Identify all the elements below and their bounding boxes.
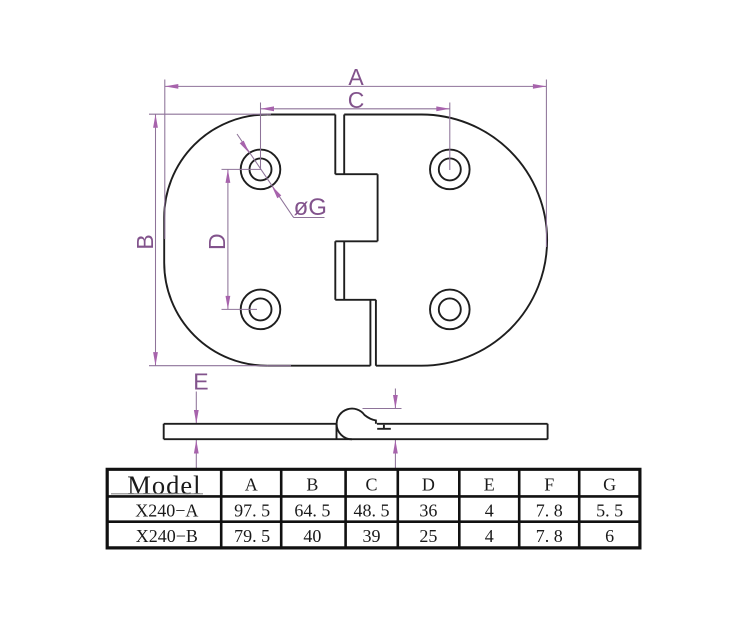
svg-text:64. 5: 64. 5 xyxy=(294,501,330,521)
svg-text:E: E xyxy=(193,368,208,394)
svg-text:4: 4 xyxy=(485,526,494,546)
svg-text:6: 6 xyxy=(605,526,614,546)
svg-text:B: B xyxy=(306,475,318,495)
svg-text:79. 5: 79. 5 xyxy=(234,526,270,546)
svg-text:X240−A: X240−A xyxy=(135,501,198,521)
svg-text:X240−B: X240−B xyxy=(136,526,198,546)
svg-text:7. 8: 7. 8 xyxy=(536,526,563,546)
svg-text:D: D xyxy=(204,233,230,250)
svg-text:4: 4 xyxy=(485,501,494,521)
svg-text:C: C xyxy=(348,87,365,113)
svg-text:A: A xyxy=(245,475,258,495)
svg-text:7. 8: 7. 8 xyxy=(536,501,563,521)
svg-text:Model: Model xyxy=(127,470,201,500)
svg-text:25: 25 xyxy=(419,526,437,546)
svg-text:øG: øG xyxy=(294,194,327,221)
svg-text:E: E xyxy=(484,475,495,495)
svg-text:F: F xyxy=(544,475,554,495)
svg-text:5. 5: 5. 5 xyxy=(596,501,623,521)
svg-text:39: 39 xyxy=(363,526,381,546)
svg-text:D: D xyxy=(422,475,435,495)
svg-text:G: G xyxy=(603,475,616,495)
svg-text:40: 40 xyxy=(303,526,321,546)
svg-text:97. 5: 97. 5 xyxy=(234,501,270,521)
svg-text:48. 5: 48. 5 xyxy=(354,501,390,521)
svg-text:B: B xyxy=(132,234,158,249)
svg-text:36: 36 xyxy=(419,501,437,521)
svg-text:C: C xyxy=(365,475,377,495)
